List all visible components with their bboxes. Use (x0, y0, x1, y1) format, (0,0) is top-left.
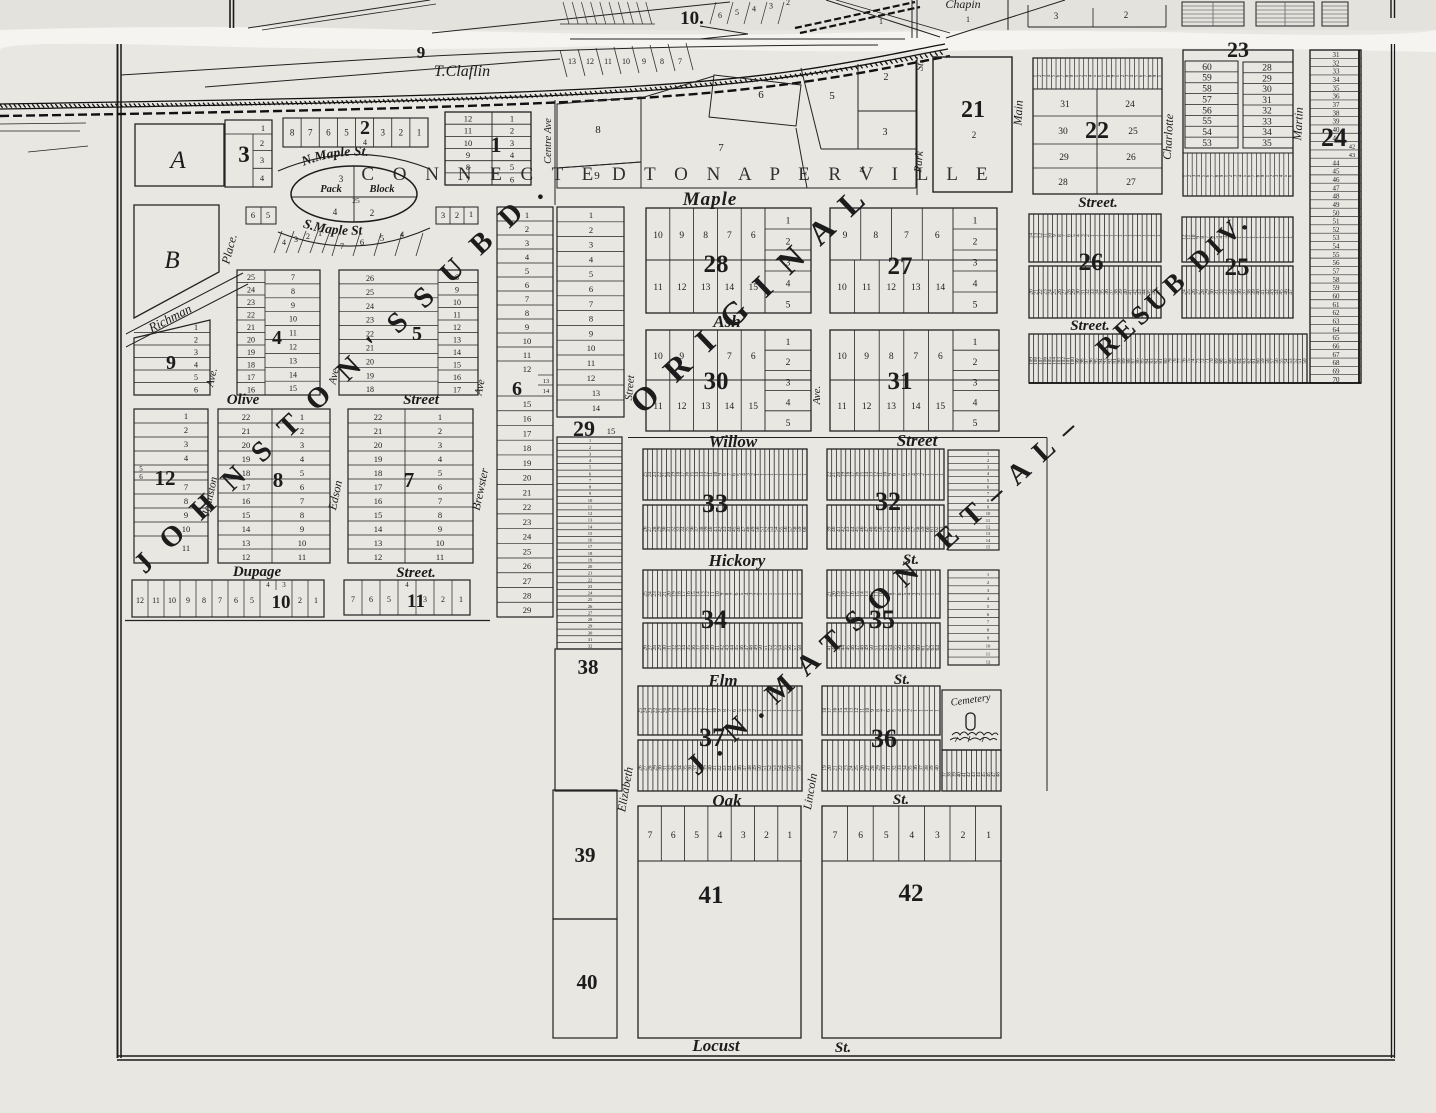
svg-text:1: 1 (438, 412, 442, 422)
svg-text:5: 5 (694, 831, 699, 841)
svg-text:5: 5 (266, 210, 270, 220)
svg-text:4: 4 (272, 327, 282, 349)
svg-text:58: 58 (1202, 85, 1212, 95)
svg-text:11: 11 (862, 283, 871, 293)
svg-text:12: 12 (464, 114, 473, 124)
svg-text:30: 30 (1262, 85, 1272, 95)
svg-text:10: 10 (622, 57, 630, 66)
svg-text:23: 23 (1227, 37, 1249, 62)
svg-text:1: 1 (787, 831, 792, 841)
svg-text:1: 1 (797, 592, 803, 595)
svg-text:13: 13 (588, 518, 593, 523)
svg-text:Hickory: Hickory (708, 551, 766, 570)
svg-text:27: 27 (1126, 178, 1136, 188)
svg-text:33: 33 (1262, 117, 1272, 127)
svg-text:24: 24 (523, 532, 532, 542)
svg-text:12: 12 (453, 323, 461, 332)
svg-text:60: 60 (802, 526, 808, 532)
svg-text:7: 7 (727, 352, 732, 362)
svg-text:4: 4 (752, 5, 756, 14)
svg-text:3: 3 (935, 831, 940, 841)
svg-text:6: 6 (751, 352, 756, 362)
svg-text:8: 8 (300, 510, 304, 520)
svg-text:7: 7 (308, 128, 313, 138)
svg-text:8: 8 (438, 510, 442, 520)
svg-text:1: 1 (797, 709, 803, 712)
svg-text:Olive: Olive (227, 392, 260, 408)
svg-text:34: 34 (1333, 76, 1341, 84)
svg-text:3: 3 (423, 595, 427, 604)
svg-text:18: 18 (588, 551, 593, 556)
svg-text:11: 11 (588, 504, 593, 509)
svg-text:13: 13 (592, 389, 600, 398)
svg-text:32: 32 (1333, 59, 1341, 67)
svg-text:6: 6 (300, 482, 304, 492)
svg-text:Locust: Locust (691, 1036, 741, 1055)
svg-text:3: 3 (525, 238, 529, 248)
svg-text:65: 65 (1333, 334, 1341, 342)
svg-text:60: 60 (1333, 293, 1341, 301)
svg-text:1: 1 (966, 15, 970, 24)
svg-text:45: 45 (1333, 168, 1341, 176)
svg-text:3: 3 (260, 155, 264, 165)
svg-text:7: 7 (404, 468, 415, 492)
svg-text:54: 54 (1202, 128, 1212, 138)
svg-text:9: 9 (417, 43, 426, 62)
svg-text:6: 6 (858, 831, 863, 841)
svg-text:6: 6 (751, 231, 756, 241)
svg-text:1: 1 (973, 338, 978, 348)
svg-text:12: 12 (242, 552, 251, 562)
svg-text:9: 9 (642, 57, 646, 66)
svg-text:13: 13 (543, 378, 550, 385)
svg-text:7: 7 (184, 482, 188, 492)
svg-text:8: 8 (703, 231, 708, 241)
svg-text:Willow: Willow (709, 432, 758, 451)
svg-text:3: 3 (589, 240, 593, 250)
svg-text:66: 66 (1333, 342, 1341, 350)
svg-text:3: 3 (294, 235, 298, 244)
svg-text:31: 31 (1333, 51, 1341, 59)
svg-text:16: 16 (242, 496, 251, 506)
svg-text:6: 6 (671, 831, 676, 841)
svg-text:2: 2 (972, 130, 977, 140)
svg-text:24: 24 (366, 302, 374, 311)
svg-text:7: 7 (351, 595, 355, 604)
svg-text:5: 5 (829, 90, 835, 102)
svg-text:11: 11 (152, 596, 160, 605)
svg-text:2: 2 (884, 72, 889, 83)
svg-text:5: 5 (525, 266, 529, 276)
svg-text:13: 13 (701, 402, 711, 412)
svg-text:21: 21 (242, 426, 251, 436)
svg-text:1: 1 (786, 338, 791, 348)
svg-text:69: 69 (1333, 367, 1341, 375)
svg-text:13: 13 (289, 356, 297, 365)
svg-text:26: 26 (366, 274, 374, 283)
svg-text:14: 14 (936, 283, 946, 293)
svg-text:26: 26 (1079, 249, 1104, 276)
svg-text:24: 24 (247, 286, 255, 295)
svg-text:10.: 10. (680, 8, 704, 29)
svg-text:2: 2 (455, 210, 459, 220)
svg-text:C O N N E C T E D T O N A: C O N N E C T E D T O N A P E R V I L L … (361, 164, 994, 185)
svg-text:35: 35 (1333, 84, 1341, 92)
svg-text:1: 1 (935, 709, 941, 712)
svg-text:5: 5 (735, 8, 739, 17)
svg-text:7: 7 (913, 352, 918, 362)
svg-text:15: 15 (453, 361, 461, 370)
svg-text:Street: Street (897, 431, 939, 450)
svg-text:10: 10 (653, 231, 663, 241)
svg-text:10: 10 (453, 298, 461, 307)
svg-text:8: 8 (889, 352, 894, 362)
svg-text:2: 2 (786, 358, 791, 368)
svg-text:12: 12 (677, 402, 687, 412)
svg-text:36: 36 (1333, 93, 1341, 101)
svg-text:11: 11 (587, 358, 595, 368)
svg-text:5: 5 (344, 128, 349, 138)
svg-text:7: 7 (291, 273, 295, 282)
svg-text:6: 6 (589, 284, 593, 294)
svg-text:64: 64 (1333, 326, 1341, 334)
svg-text:48: 48 (1333, 193, 1341, 201)
svg-text:5: 5 (589, 269, 593, 279)
svg-text:13: 13 (701, 283, 711, 293)
svg-text:11: 11 (837, 402, 846, 412)
svg-text:2: 2 (184, 425, 188, 435)
svg-text:4: 4 (282, 238, 286, 247)
svg-text:Martin: Martin (1290, 107, 1306, 142)
svg-text:26: 26 (523, 561, 532, 571)
svg-text:Block: Block (368, 184, 395, 195)
svg-text:A: A (168, 147, 186, 174)
svg-text:T.Claflin: T.Claflin (434, 63, 490, 80)
svg-text:41: 41 (699, 882, 724, 909)
svg-text:25: 25 (352, 196, 360, 205)
svg-text:10: 10 (289, 315, 297, 324)
svg-text:19: 19 (588, 557, 593, 562)
svg-text:20: 20 (523, 473, 532, 483)
svg-text:Chapin: Chapin (945, 0, 980, 11)
svg-text:23: 23 (247, 298, 255, 307)
svg-text:1: 1 (589, 210, 593, 220)
svg-text:8: 8 (525, 308, 529, 318)
svg-text:1: 1 (939, 473, 945, 476)
svg-text:5: 5 (786, 419, 791, 429)
svg-text:33: 33 (702, 489, 728, 518)
svg-text:4: 4 (909, 831, 914, 841)
svg-text:4: 4 (718, 831, 723, 841)
svg-text:St.: St. (835, 1040, 851, 1056)
svg-text:10: 10 (523, 336, 532, 346)
svg-text:6: 6 (139, 473, 143, 481)
svg-text:56: 56 (1202, 106, 1212, 116)
svg-text:14: 14 (725, 402, 735, 412)
svg-text:12: 12 (374, 552, 383, 562)
svg-text:13: 13 (986, 531, 991, 536)
svg-text:49: 49 (1333, 201, 1341, 209)
svg-text:Dupage: Dupage (232, 564, 282, 580)
svg-text:24: 24 (588, 591, 593, 596)
svg-text:13: 13 (453, 336, 461, 345)
svg-text:12: 12 (289, 343, 297, 352)
svg-text:B: B (164, 247, 179, 274)
svg-text:31: 31 (1262, 96, 1272, 106)
svg-text:15: 15 (289, 384, 297, 393)
svg-text:15: 15 (936, 402, 946, 412)
svg-text:27: 27 (888, 253, 913, 280)
svg-text:55: 55 (1333, 251, 1341, 259)
svg-text:6: 6 (234, 596, 238, 605)
svg-text:14: 14 (911, 402, 921, 412)
svg-text:55: 55 (1202, 117, 1212, 127)
svg-text:17: 17 (523, 428, 532, 438)
svg-text:21: 21 (588, 571, 593, 576)
svg-text:5: 5 (300, 468, 304, 478)
svg-text:57: 57 (1202, 95, 1212, 105)
svg-text:6: 6 (938, 352, 943, 362)
svg-text:10: 10 (588, 498, 593, 503)
svg-text:54: 54 (1333, 243, 1341, 251)
svg-text:13: 13 (242, 538, 251, 548)
svg-text:9: 9 (525, 322, 529, 332)
svg-text:26: 26 (588, 604, 593, 609)
svg-text:12: 12 (986, 525, 991, 530)
svg-text:3: 3 (973, 259, 978, 269)
svg-text:16: 16 (453, 373, 461, 382)
svg-text:1: 1 (1156, 234, 1162, 237)
svg-text:20: 20 (374, 440, 383, 450)
svg-text:5: 5 (884, 831, 889, 841)
svg-text:7: 7 (678, 57, 682, 66)
svg-text:3: 3 (883, 127, 888, 138)
svg-text:7: 7 (648, 831, 653, 841)
svg-text:Street: Street (403, 392, 440, 408)
svg-text:14: 14 (986, 538, 991, 543)
svg-text:6: 6 (326, 128, 331, 138)
svg-text:16: 16 (588, 538, 593, 543)
svg-text:9: 9 (864, 352, 869, 362)
svg-text:3: 3 (441, 210, 445, 220)
svg-text:4: 4 (194, 361, 198, 370)
svg-text:6: 6 (360, 237, 364, 247)
svg-text:56: 56 (1333, 259, 1341, 267)
svg-text:5: 5 (250, 596, 254, 605)
svg-text:3: 3 (300, 440, 304, 450)
svg-text:6: 6 (935, 231, 940, 241)
svg-text:28: 28 (1262, 64, 1272, 74)
svg-text:12: 12 (587, 373, 596, 383)
svg-text:8: 8 (273, 468, 284, 492)
svg-text:4: 4 (266, 581, 270, 589)
svg-text:5: 5 (973, 419, 978, 429)
svg-text:11: 11 (436, 552, 444, 562)
svg-text:2: 2 (973, 358, 978, 368)
svg-text:6: 6 (718, 11, 722, 20)
svg-text:Main: Main (1010, 100, 1025, 127)
svg-text:19: 19 (247, 348, 255, 357)
svg-text:18: 18 (366, 385, 374, 394)
svg-text:17: 17 (588, 544, 593, 549)
svg-text:1: 1 (973, 217, 978, 227)
svg-text:20: 20 (588, 564, 593, 569)
svg-text:22: 22 (374, 412, 383, 422)
svg-text:Park: Park (912, 149, 926, 173)
svg-text:3: 3 (510, 138, 514, 148)
svg-text:3: 3 (438, 440, 442, 450)
svg-text:19: 19 (523, 458, 532, 468)
svg-text:2: 2 (194, 336, 198, 345)
svg-text:25: 25 (523, 546, 532, 556)
svg-text:28: 28 (523, 590, 532, 600)
svg-text:14: 14 (289, 370, 297, 379)
svg-text:42: 42 (899, 880, 924, 907)
svg-text:11: 11 (604, 57, 612, 66)
svg-text:25: 25 (588, 597, 593, 602)
svg-text:16: 16 (523, 414, 532, 424)
svg-text:3: 3 (1054, 11, 1059, 21)
svg-text:10: 10 (464, 138, 473, 148)
svg-text:23: 23 (588, 584, 593, 589)
svg-text:7: 7 (727, 231, 732, 241)
svg-text:4: 4 (973, 399, 978, 409)
svg-text:64: 64 (935, 645, 941, 651)
svg-text:62: 62 (1333, 309, 1341, 317)
svg-text:25: 25 (366, 288, 374, 297)
svg-text:20: 20 (247, 336, 255, 345)
svg-text:14: 14 (242, 524, 251, 534)
svg-text:22: 22 (588, 577, 593, 582)
svg-text:48: 48 (997, 772, 1002, 777)
svg-text:15: 15 (986, 545, 991, 550)
svg-text:58: 58 (797, 765, 803, 771)
svg-text:2: 2 (360, 117, 370, 139)
svg-text:31: 31 (588, 637, 593, 642)
svg-text:11: 11 (523, 350, 531, 360)
svg-text:14: 14 (374, 524, 383, 534)
svg-text:2: 2 (260, 138, 264, 148)
svg-text:31: 31 (1060, 100, 1070, 110)
svg-text:3: 3 (282, 581, 286, 589)
svg-text:5: 5 (510, 162, 514, 172)
svg-text:4: 4 (405, 581, 409, 589)
svg-text:2: 2 (441, 595, 445, 604)
svg-text:2: 2 (973, 238, 978, 248)
svg-text:29: 29 (588, 624, 593, 629)
svg-text:5: 5 (973, 301, 978, 311)
svg-text:33: 33 (1333, 68, 1341, 76)
svg-text:St.: St. (915, 60, 927, 71)
svg-text:8: 8 (291, 287, 295, 296)
svg-text:1: 1 (935, 592, 941, 595)
svg-text:22: 22 (523, 502, 532, 512)
svg-text:47: 47 (1333, 184, 1341, 192)
svg-text:11: 11 (986, 651, 991, 656)
svg-text:12: 12 (155, 466, 176, 490)
svg-text:9: 9 (186, 596, 190, 605)
svg-text:3: 3 (786, 378, 791, 388)
svg-text:21: 21 (247, 323, 255, 332)
svg-text:11: 11 (298, 552, 306, 562)
svg-text:30: 30 (1058, 127, 1068, 137)
svg-text:25: 25 (1225, 254, 1250, 281)
svg-text:59: 59 (1202, 74, 1212, 84)
svg-text:2: 2 (589, 225, 593, 235)
svg-text:5: 5 (139, 465, 143, 473)
svg-text:37: 37 (1333, 101, 1341, 109)
svg-text:1: 1 (318, 229, 322, 238)
svg-text:6: 6 (525, 280, 529, 290)
svg-text:7: 7 (589, 299, 593, 309)
svg-text:10: 10 (168, 596, 176, 605)
svg-text:1: 1 (261, 123, 265, 133)
svg-text:15: 15 (523, 399, 532, 409)
svg-text:38: 38 (1333, 109, 1341, 117)
svg-text:21: 21 (961, 97, 985, 123)
svg-text:53: 53 (1202, 139, 1212, 149)
svg-text:Street.: Street. (1078, 195, 1118, 211)
svg-text:11: 11 (289, 329, 297, 338)
svg-text:22: 22 (247, 311, 255, 320)
svg-text:6: 6 (369, 595, 373, 604)
svg-text:1: 1 (786, 217, 791, 227)
svg-text:67: 67 (1333, 351, 1341, 359)
svg-text:17: 17 (374, 482, 383, 492)
svg-text:25: 25 (247, 273, 255, 282)
svg-text:5: 5 (387, 595, 391, 604)
svg-text:Street.: Street. (396, 565, 436, 581)
svg-text:46: 46 (1333, 176, 1341, 184)
svg-text:15: 15 (607, 426, 616, 436)
svg-text:16: 16 (374, 496, 383, 506)
svg-text:1: 1 (525, 210, 529, 220)
svg-text:15: 15 (242, 510, 251, 520)
svg-text:1: 1 (469, 209, 473, 219)
svg-text:25: 25 (1128, 127, 1138, 137)
svg-text:Ave.: Ave. (811, 386, 823, 406)
svg-text:4: 4 (333, 207, 338, 217)
svg-text:68: 68 (1333, 359, 1341, 367)
svg-text:10: 10 (986, 643, 991, 648)
svg-text:1: 1 (879, 17, 883, 26)
svg-text:9: 9 (679, 231, 684, 241)
svg-text:10: 10 (436, 538, 445, 548)
svg-text:12: 12 (986, 659, 991, 664)
svg-text:1: 1 (491, 132, 502, 157)
svg-text:7: 7 (466, 174, 470, 184)
svg-text:Pack: Pack (320, 184, 342, 195)
svg-text:3: 3 (339, 174, 344, 184)
svg-text:1: 1 (802, 473, 808, 476)
svg-text:1: 1 (314, 596, 318, 605)
svg-text:28: 28 (704, 251, 729, 278)
svg-text:3: 3 (741, 831, 746, 841)
svg-text:36: 36 (871, 724, 897, 753)
svg-text:8: 8 (466, 162, 470, 172)
svg-text:28: 28 (588, 617, 593, 622)
svg-text:6: 6 (194, 386, 198, 395)
svg-text:5: 5 (786, 301, 791, 311)
svg-text:9: 9 (300, 524, 304, 534)
svg-text:1: 1 (459, 595, 463, 604)
svg-text:10: 10 (272, 592, 291, 613)
svg-text:9: 9 (466, 150, 470, 160)
svg-text:4: 4 (973, 280, 978, 290)
svg-text:1: 1 (510, 114, 514, 124)
svg-text:13: 13 (568, 57, 576, 66)
svg-text:10: 10 (587, 343, 596, 353)
